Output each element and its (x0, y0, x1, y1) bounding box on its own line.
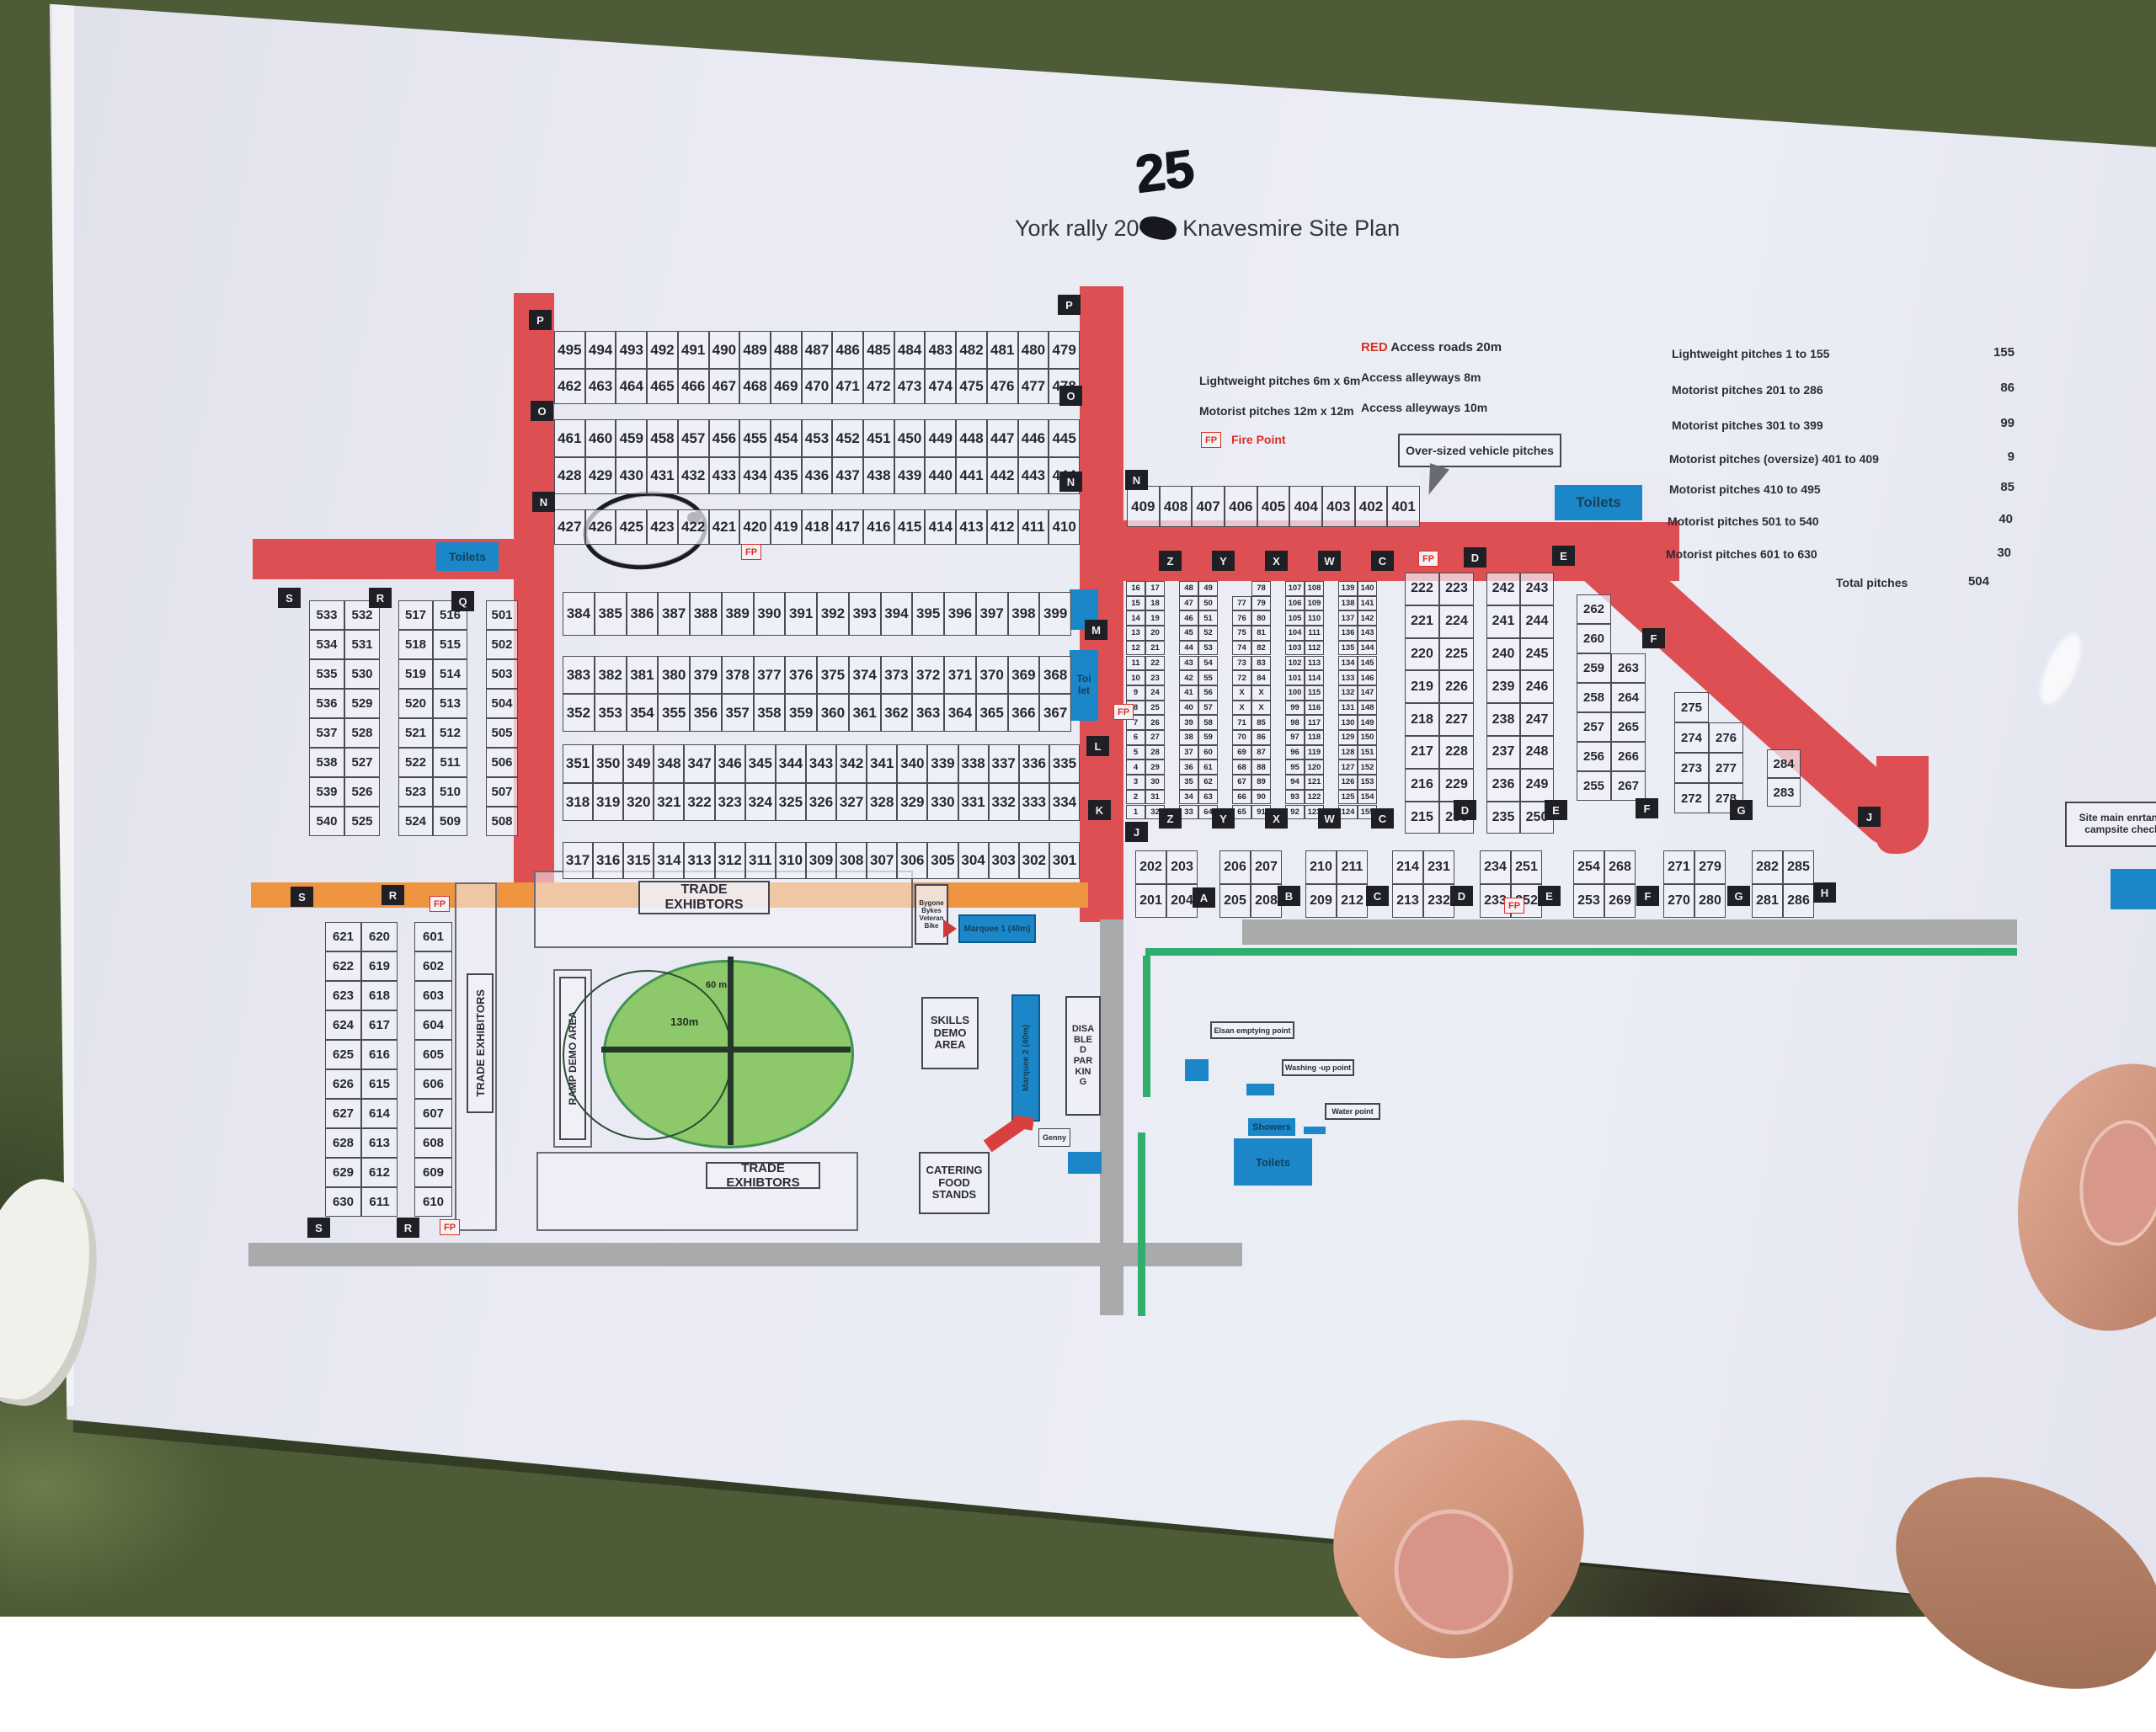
pitch-cell: 88 (1251, 759, 1271, 775)
pitch-cell: 529 (344, 689, 380, 718)
pitch-cell: 13 (1126, 626, 1145, 641)
pitch-cell: 227 (1439, 703, 1474, 736)
road-marker-p: P (529, 310, 552, 330)
pitch-cell: 223 (1439, 573, 1474, 605)
pitch-cell: 531 (344, 630, 380, 659)
pitch-cell: 368 (1039, 656, 1071, 694)
pitch-cell: 59 (1198, 730, 1218, 745)
pitch-cell: 130 (1338, 715, 1358, 730)
pitch-cell: 118 (1305, 730, 1324, 745)
pitch-cell: 104 (1285, 626, 1305, 641)
pitch-cell: 364 (944, 694, 976, 732)
pitch-cell: 401 (1387, 486, 1420, 527)
pitch-cell: 627 (325, 1099, 361, 1128)
pitch-cell: 448 (956, 419, 987, 457)
pitch-cell: 410 (1049, 509, 1080, 545)
pitch-cell: 513 (433, 689, 467, 718)
pitch-cell: 449 (925, 419, 956, 457)
pitch-cell: 348 (654, 744, 684, 783)
toilets-label-top-left: Toilets (436, 542, 499, 571)
pitch-cell: 146 (1358, 670, 1377, 685)
pitch-cell: 84 (1251, 670, 1271, 685)
road-marker-p: P (1058, 295, 1081, 315)
pitch-cell: 21 (1145, 641, 1165, 656)
pitch-cell: 521 (398, 718, 433, 748)
pitch-cell: 4 (1126, 759, 1145, 775)
pitch-cell: 505 (486, 718, 518, 748)
pitch-cell: 318 (563, 783, 593, 821)
pitch-cell: 310 (776, 842, 806, 879)
pitch-cell: 481 (987, 331, 1018, 369)
road-marker-e: E (1545, 800, 1567, 820)
pitch-cell: 80 (1251, 610, 1271, 626)
pitch-cell: 93 (1285, 790, 1305, 805)
pitch-cell: 150 (1358, 730, 1377, 745)
pitch-cell: 535 (309, 659, 344, 689)
pitch-cell: 503 (486, 659, 518, 689)
pitch-cell: 530 (344, 659, 380, 689)
pitch-cell: 360 (817, 694, 849, 732)
legend-fire-point-label: Fire Point (1231, 433, 1286, 446)
pitch-cell: 393 (849, 592, 881, 636)
road-marker-f: F (1636, 798, 1658, 818)
toilets-label-right: Toilets (1555, 485, 1642, 520)
pitch-cell: 331 (958, 783, 989, 821)
pitch-cell: 314 (654, 842, 684, 879)
road-marker-z: Z (1159, 808, 1182, 829)
pitch-cell: 40 (1179, 701, 1198, 716)
pitch-cell: 264 (1611, 683, 1646, 712)
pitch-cell: 141 (1358, 596, 1377, 611)
road-marker-j: J (1125, 822, 1148, 842)
pitch-cell: 147 (1358, 685, 1377, 701)
pitch-cell: 45 (1179, 626, 1198, 641)
green-fence-vertical-1 (1143, 956, 1150, 1097)
pitch-cell: 493 (616, 331, 647, 369)
pitch-cell: 485 (863, 331, 894, 369)
pitch-cell: 396 (944, 592, 976, 636)
marquee-1-box: Marquee 1 (40m) (958, 914, 1036, 943)
pitch-cell: 528 (344, 718, 380, 748)
road-marker-x: X (1265, 808, 1288, 829)
pitch-cell: 83 (1251, 656, 1271, 671)
pitch-cell: 382 (595, 656, 627, 694)
pitch-cell: 248 (1520, 736, 1554, 769)
pitch-cell: 465 (647, 369, 678, 404)
road-marker-z: Z (1159, 551, 1182, 571)
pitch-cell: 255 (1577, 771, 1611, 801)
pitch-cell: 431 (647, 457, 678, 494)
pitch-cell: 380 (658, 656, 690, 694)
pitch-cell: 66 (1232, 790, 1251, 805)
access-road-left-vertical (514, 293, 554, 884)
pitch-cell: 282 (1752, 850, 1783, 884)
water-point-label: Water point (1325, 1103, 1380, 1120)
pitch-cell: 461 (554, 419, 585, 457)
pitch-cell: 247 (1520, 703, 1554, 736)
stat-label-2: Motorist pitches 201 to 286 (1672, 383, 1823, 397)
pitch-cell: 85 (1251, 715, 1271, 730)
pitch-cell: 42 (1179, 670, 1198, 685)
pitch-cell: 73 (1232, 656, 1251, 671)
pitch-cell: 510 (433, 777, 467, 807)
access-road-left-horizontal (253, 539, 554, 579)
pitch-cell: 470 (802, 369, 833, 404)
catering-food-stands: CATERING FOOD STANDS (919, 1152, 990, 1214)
pitch-cell: 22 (1145, 656, 1165, 671)
pitch-cell: 345 (745, 744, 776, 783)
road-marker-s: S (278, 588, 301, 608)
stat-value-6: 40 (1961, 512, 2013, 526)
pitch-cell: 322 (684, 783, 714, 821)
stat-label-1: Lightweight pitches 1 to 155 (1672, 347, 1829, 360)
pitch-cell: 522 (398, 748, 433, 777)
pitch-cell: 154 (1358, 790, 1377, 805)
pitch-cell: 6 (1126, 730, 1145, 745)
pitch-cell: 280 (1694, 884, 1726, 918)
pitch-cell: 269 (1604, 884, 1636, 918)
pitch-cell: 117 (1305, 715, 1324, 730)
pitch-cell: 1 (1126, 805, 1145, 820)
pitch-cell: 351 (563, 744, 593, 783)
pitch-cell: 607 (414, 1099, 452, 1128)
pitch-cell: 610 (414, 1187, 452, 1217)
pitch-cell: 347 (684, 744, 714, 783)
grey-road-vertical (1100, 919, 1123, 1315)
fire-point-marker: FP (1504, 898, 1524, 914)
pitch-cell: 44 (1179, 641, 1198, 656)
pitch-cell: 397 (976, 592, 1008, 636)
pitch-cell: 138 (1338, 596, 1358, 611)
pitch-cell: 212 (1337, 884, 1368, 918)
pitch-cell: 441 (956, 457, 987, 494)
pitch-cell: 369 (1008, 656, 1040, 694)
pitch-cell: X (1251, 685, 1271, 701)
pitch-cell: 202 (1135, 850, 1166, 884)
pitch-cell: 352 (563, 694, 595, 732)
pitch-cell: 19 (1145, 610, 1165, 626)
pitch-cell: 346 (715, 744, 745, 783)
road-marker-b: B (1278, 886, 1300, 906)
arena-inner-circle (563, 970, 733, 1140)
pitch-cell: 98 (1285, 715, 1305, 730)
pitch-cell: 129 (1338, 730, 1358, 745)
pitch-cell: 308 (836, 842, 867, 879)
pitch-cell: 622 (325, 951, 361, 981)
pitch-cell: 459 (616, 419, 647, 457)
pitch-cell: 315 (623, 842, 654, 879)
pitch-cell: 206 (1219, 850, 1251, 884)
pitch-cell: 112 (1305, 641, 1324, 656)
pitch-cell: 328 (867, 783, 897, 821)
pitch-cell: 381 (627, 656, 659, 694)
road-marker-o: O (1059, 386, 1082, 406)
pitch-cell: 31 (1145, 790, 1165, 805)
pitch-cell: 12 (1126, 641, 1145, 656)
road-marker-f: F (1642, 628, 1665, 648)
pitch-cell: 609 (414, 1158, 452, 1187)
stat-total-value: 504 (1937, 574, 1989, 589)
road-marker-s: S (307, 1218, 330, 1238)
road-marker-d: D (1464, 547, 1486, 568)
pitch-cell: 321 (654, 783, 684, 821)
pitch-cell: 387 (658, 592, 690, 636)
pitch-cell: 78 (1251, 581, 1271, 596)
pitch-cell: 87 (1251, 745, 1271, 760)
pitch-cell: 10 (1126, 670, 1145, 685)
pitch-cell: 463 (585, 369, 616, 404)
pitch-cell: 533 (309, 600, 344, 630)
road-marker-y: Y (1212, 551, 1235, 571)
pitch-cell: 394 (881, 592, 913, 636)
pitch-cell: 57 (1198, 701, 1218, 716)
road-marker-k: K (1088, 800, 1111, 820)
pitch-cell: 625 (325, 1040, 361, 1069)
pitch-cell: 210 (1305, 850, 1337, 884)
pitch-cell: 324 (745, 783, 776, 821)
pitch-cell: 268 (1604, 850, 1636, 884)
pitch-cell: 512 (433, 718, 467, 748)
pitch-cell: 333 (1019, 783, 1049, 821)
pitch-cell: 205 (1219, 884, 1251, 918)
marquee-arrow-icon (943, 919, 957, 938)
pitch-cell: 209 (1305, 884, 1337, 918)
pitch-cell: 119 (1305, 745, 1324, 760)
road-marker-y: Y (1212, 808, 1235, 829)
pitch-cell: 385 (595, 592, 627, 636)
road-marker-m: M (1085, 620, 1107, 640)
road-marker-a: A (1193, 887, 1215, 908)
pitch-cell: 256 (1577, 742, 1611, 771)
pitch-cell: 432 (678, 457, 709, 494)
site-entrance-block (2111, 869, 2156, 909)
pitch-cell: 317 (563, 842, 593, 879)
pitch-cell: 312 (715, 842, 745, 879)
pitch-cell: 354 (627, 694, 659, 732)
pitch-cell: 343 (806, 744, 836, 783)
pitch-cell: 53 (1198, 641, 1218, 656)
pitch-cell: 139 (1338, 581, 1358, 596)
pitch-cell: 20 (1145, 626, 1165, 641)
pitch-cell: 86 (1251, 730, 1271, 745)
pitch-cell: 520 (398, 689, 433, 718)
pitch-cell: 43 (1179, 656, 1198, 671)
pitch-cell: 492 (647, 331, 678, 369)
pitch-cell: 340 (897, 744, 927, 783)
pitch-cell: 92 (1285, 805, 1305, 820)
legend-alleyways-10m: Access alleyways 10m (1361, 401, 1487, 414)
pitch-cell: 24 (1145, 685, 1165, 701)
pitch-cell: 386 (627, 592, 659, 636)
pitch-cell: 376 (785, 656, 817, 694)
pitch-cell: 420 (739, 509, 771, 545)
pitch-cell: 355 (658, 694, 690, 732)
pitch-cell: 608 (414, 1128, 452, 1158)
pitch-cell: 234 (1480, 850, 1511, 884)
pitch-cell: 316 (593, 842, 623, 879)
pitch-cell: 508 (486, 807, 518, 836)
pitch-cell: 25 (1145, 701, 1165, 716)
fire-point-marker: FP (1113, 704, 1134, 720)
pitch-cell: 211 (1337, 850, 1368, 884)
pitch-cell: 416 (863, 509, 894, 545)
road-marker-w: W (1318, 551, 1341, 571)
pitch-cell: 46 (1179, 610, 1198, 626)
pitch-cell: 259 (1577, 653, 1611, 683)
pitch-cell: 362 (881, 694, 913, 732)
road-marker-d: D (1450, 886, 1473, 906)
road-marker-l: L (1086, 736, 1109, 756)
pitch-cell: 403 (1322, 486, 1355, 527)
stat-total-label: Total pitches (1836, 576, 1908, 589)
pitch-cell: 616 (361, 1040, 398, 1069)
pitch-cell: 131 (1338, 701, 1358, 716)
pitch-cell: 95 (1285, 759, 1305, 775)
pitch-cell: 47 (1179, 596, 1198, 611)
pitch-cell: 217 (1405, 736, 1439, 769)
pitch-cell: 540 (309, 807, 344, 836)
pitch-cell: 148 (1358, 701, 1377, 716)
road-marker-n: N (1125, 470, 1148, 490)
pitch-cell: 63 (1198, 790, 1218, 805)
pitch-cell: 476 (987, 369, 1018, 404)
pitch-cell: 51 (1198, 610, 1218, 626)
pitch-cell: 375 (817, 656, 849, 694)
pitch-cell: 473 (894, 369, 926, 404)
pitch-cell: 231 (1423, 850, 1454, 884)
pitch-cell: 430 (616, 457, 647, 494)
pitch-cell: 127 (1338, 759, 1358, 775)
pitch-cell: 446 (1018, 419, 1049, 457)
pitch-cell: X (1232, 701, 1251, 716)
elsan-point-block (1185, 1059, 1209, 1081)
pitch-cell: 445 (1049, 419, 1080, 457)
pitch-cell: 145 (1358, 656, 1377, 671)
pitch-cell: 517 (398, 600, 433, 630)
pitch-cell: 97 (1285, 730, 1305, 745)
pitch-cell: 9 (1126, 685, 1145, 701)
pitch-cell: 429 (585, 457, 616, 494)
pitch-cell: 215 (1405, 802, 1439, 834)
pitch-cell: 623 (325, 981, 361, 1010)
pitch-cell: 422 (678, 509, 709, 545)
pitch-cell: 320 (623, 783, 654, 821)
stat-label-7: Motorist pitches 601 to 630 (1666, 547, 1817, 561)
pitch-cell: 213 (1392, 884, 1423, 918)
road-marker-r: R (369, 588, 392, 608)
pitch-cell: 525 (344, 807, 380, 836)
title-prefix: York rally 20 (1015, 216, 1139, 241)
pitch-cell: 365 (976, 694, 1008, 732)
pitch-cell: 3 (1126, 775, 1145, 790)
genny-box: Genny (1038, 1128, 1070, 1147)
legend-motorist: Motorist pitches 12m x 12m (1199, 404, 1354, 418)
pitch-cell: 466 (678, 369, 709, 404)
pitch-cell: 15 (1126, 596, 1145, 611)
pitch-cell: 421 (709, 509, 740, 545)
road-marker-n: N (1059, 472, 1082, 492)
pitch-cell: 392 (817, 592, 849, 636)
pitch-cell: 388 (690, 592, 722, 636)
pitch-cell: 257 (1577, 712, 1611, 742)
pitch-cell: 275 (1674, 692, 1709, 722)
pitch-cell: 612 (361, 1158, 398, 1187)
pitch-cell: 336 (1019, 744, 1049, 783)
pitch-cell: 56 (1198, 685, 1218, 701)
pitch-cell: 70 (1232, 730, 1251, 745)
pitch-cell: 48 (1179, 581, 1198, 596)
pitch-cell: 514 (433, 659, 467, 689)
pitch-cell: 54 (1198, 656, 1218, 671)
skills-demo-area: SKILLS DEMO AREA (921, 997, 979, 1069)
pitch-cell: 237 (1486, 736, 1520, 769)
pitch-cell: 307 (867, 842, 897, 879)
pitch-cell: 226 (1439, 670, 1474, 703)
pitch-cell: 246 (1520, 670, 1554, 703)
trade-exhibitors-left-label: TRADE EXHIBITORS (467, 973, 494, 1113)
pitch-cell: 5 (1126, 745, 1145, 760)
pitch-cell: 327 (836, 783, 867, 821)
pitch-cell: 35 (1179, 775, 1198, 790)
pitch-cell: 367 (1039, 694, 1071, 732)
toilets-main-block: Toilets (1234, 1138, 1312, 1186)
pitch-cell: 267 (1611, 771, 1646, 801)
pitch-cell: 134 (1338, 656, 1358, 671)
road-marker-s: S (291, 887, 313, 907)
road-marker-r: R (382, 885, 404, 905)
pitch-cell: 332 (989, 783, 1019, 821)
legend-access-roads: RED Access roads 20m (1361, 340, 1502, 354)
pitch-cell: 265 (1611, 712, 1646, 742)
pitch-cell: 94 (1285, 775, 1305, 790)
pitch-cell: 113 (1305, 656, 1324, 671)
pitch-cell: 359 (785, 694, 817, 732)
pitch-cell: 235 (1486, 802, 1520, 834)
pitch-cell: 419 (771, 509, 802, 545)
pitch-cell: 405 (1257, 486, 1290, 527)
road-marker-w: W (1318, 808, 1341, 829)
pitch-cell: 11 (1126, 656, 1145, 671)
pitch-cell: 383 (563, 656, 595, 694)
pitch-cell: 519 (398, 659, 433, 689)
pitch-cell: 440 (925, 457, 956, 494)
road-marker-q: Q (451, 591, 474, 611)
pitch-cell: 402 (1355, 486, 1388, 527)
pitch-cell: 62 (1198, 775, 1218, 790)
pitch-cell: 490 (709, 331, 740, 369)
pitch-cell: 509 (433, 807, 467, 836)
pitch-cell: 539 (309, 777, 344, 807)
pitch-cell: 274 (1674, 722, 1709, 753)
pitch-cell: 253 (1573, 884, 1604, 918)
legend-alleyways-8m: Access alleyways 8m (1361, 370, 1481, 384)
stat-value-7: 30 (1959, 546, 2011, 560)
pitch-cell: 323 (715, 783, 745, 821)
washing-up-point-label: Washing -up point (1282, 1059, 1354, 1076)
pitch-cell: 450 (894, 419, 926, 457)
pitch-cell: 451 (863, 419, 894, 457)
trade-exhibitors-bottom-label: TRADE EXHIBTORS (706, 1162, 820, 1189)
pitch-cell: 132 (1338, 685, 1358, 701)
pitch-cell: 415 (894, 509, 926, 545)
pitch-cell: 501 (486, 600, 518, 630)
pitch-cell: 342 (836, 744, 867, 783)
pitch-cell: 33 (1179, 805, 1198, 820)
stat-label-6: Motorist pitches 501 to 540 (1668, 514, 1819, 528)
pitch-cell: 90 (1251, 790, 1271, 805)
pitch-cell: 207 (1251, 850, 1282, 884)
pitch-cell: 128 (1338, 745, 1358, 760)
